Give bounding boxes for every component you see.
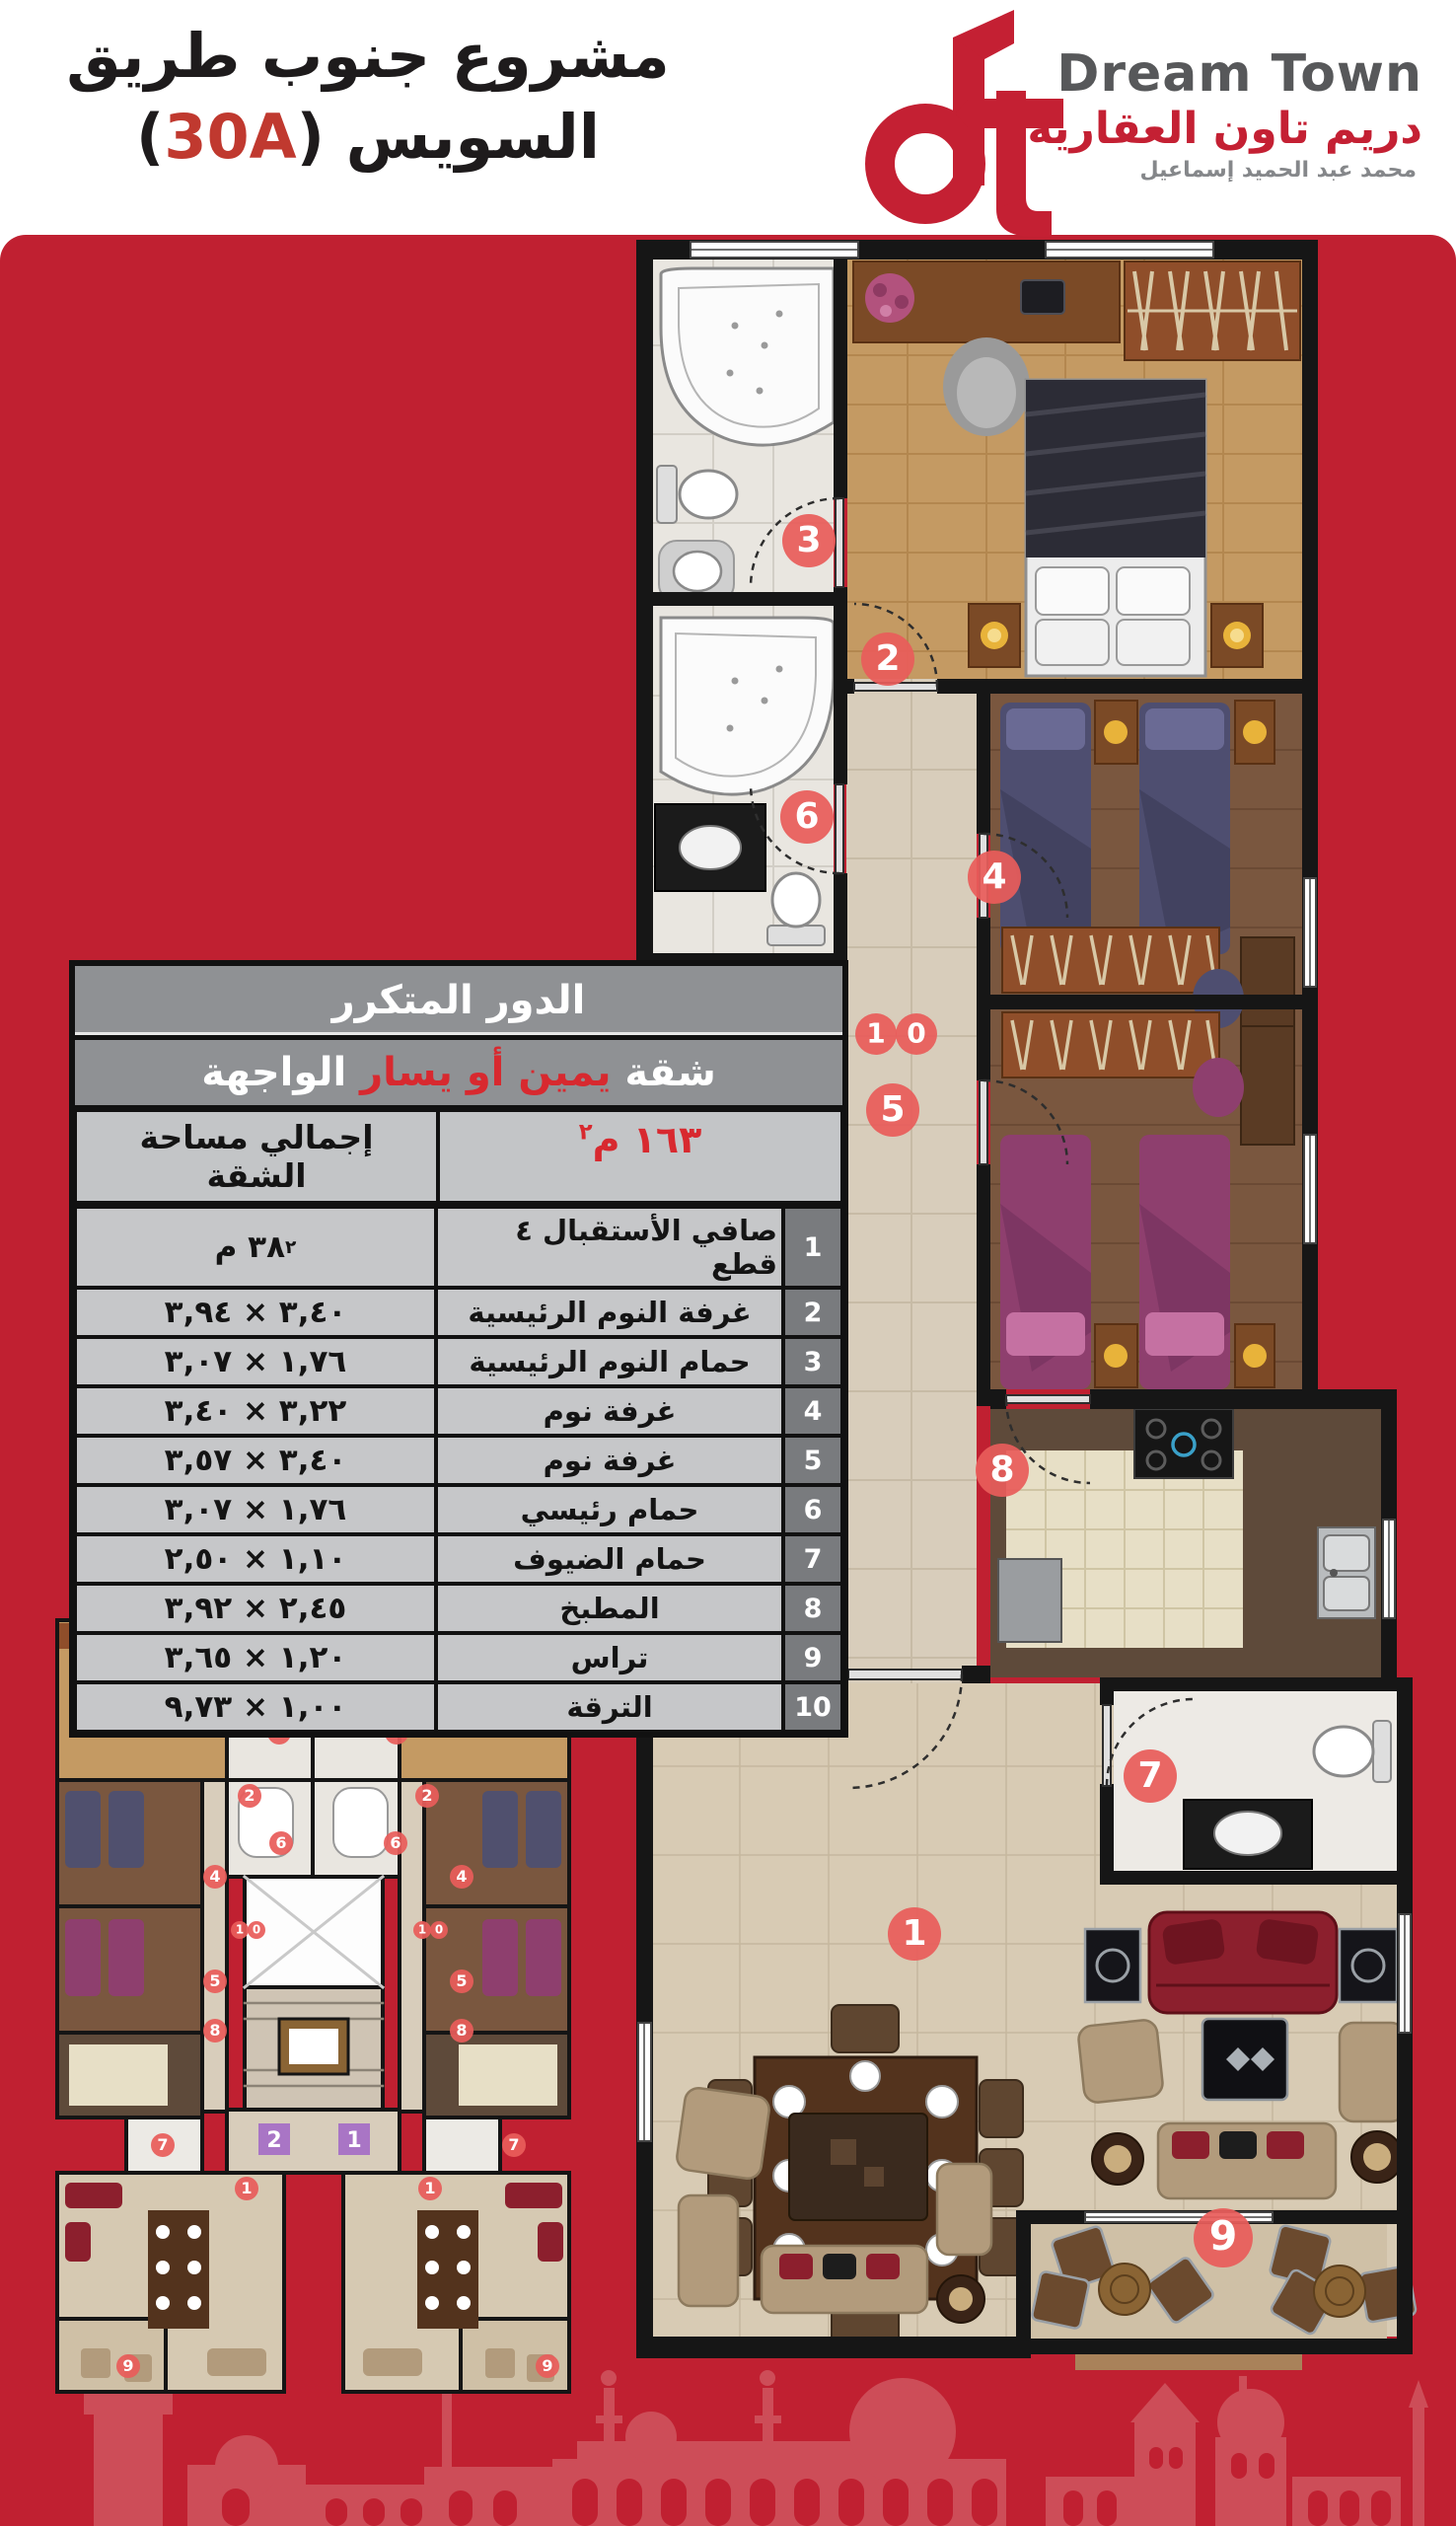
terrace-sill [1075,2354,1302,2370]
plan-marker-label: 6 [794,796,819,837]
plan-marker-label: 2 [875,638,900,679]
master-bed [1026,380,1205,676]
title-line2: السويس (30A) [28,97,708,178]
mini-marker-label: 1 [418,1923,426,1937]
room-label: غرفة النوم الرئيسية [438,1290,781,1335]
mini-marker-label: 1 [241,2179,252,2197]
logo-name-en: Dream Town [1016,47,1422,102]
logo-name-ar: دريم تاون العقارية [1016,102,1422,156]
room-dimensions: ٢,٤٥ × ٣,٩٢ [77,1586,434,1631]
mini-marker-label: 4 [209,1867,220,1886]
area-label: إجمالي مساحة الشقة [77,1112,436,1201]
room-number-badge: 7 [785,1536,840,1582]
spec-row-4: 4غرفة نوم٣,٢٢ × ٣,٤٠ [75,1386,842,1436]
plan-marker-label: 0 [907,1016,925,1049]
plan-marker-label: 8 [989,1449,1014,1490]
spec-table: الدور المتكرر شقة يمين أو يسار الواجهة ١… [69,960,848,1738]
spec-row-9: 9تراس١,٢٠ × ٣,٦٥ [75,1633,842,1682]
mini-marker-label: 9 [542,2356,552,2375]
plan-marker-label: 1 [866,1016,885,1049]
room-dimensions: ١,٧٦ × ٣,٠٧ [77,1339,434,1384]
room-dimensions: ١,١٠ × ٢,٥٠ [77,1536,434,1582]
mini-unit-label-right: 1 [346,2128,361,2153]
spec-rows: 1صافي الأستقبال ٤ قطع٣٨ م٢2غرفة النوم ال… [75,1207,842,1732]
spec-row-1: 1صافي الأستقبال ٤ قطع٣٨ م٢ [75,1207,842,1288]
mini-marker-label: 2 [244,1786,255,1805]
spec-row-5: 5غرفة نوم٣,٤٠ × ٣,٥٧ [75,1436,842,1485]
room-number-badge: 6 [785,1487,840,1532]
mini-marker-label: 4 [456,1867,467,1886]
room-dimensions: ١,٠٠ × ٩,٧٣ [77,1684,434,1730]
mini-unit-label-left: 2 [266,2128,281,2153]
room-label: المطبخ [438,1586,781,1631]
mini-marker-label: 8 [456,2021,467,2040]
room-number-badge: 2 [785,1290,840,1335]
mini-marker-label: 0 [435,1923,443,1937]
mini-marker-label: 7 [508,2135,519,2154]
spec-table-title: الدور المتكرر [75,966,842,1040]
mini-marker-label: 1 [236,1923,244,1937]
spec-row-7: 7حمام الضيوف١,١٠ × ٢,٥٠ [75,1534,842,1584]
room-label: حمام رئيسي [438,1487,781,1532]
title-line1: مشروع جنوب طريق [28,16,708,97]
spec-row-6: 6حمام رئيسي١,٧٦ × ٣,٠٧ [75,1485,842,1534]
spec-row-10: 10الترقة١,٠٠ × ٩,٧٣ [75,1682,842,1732]
logo: Dream Town دريم تاون العقارية محمد عبد ا… [1016,47,1422,186]
mini-marker-label: 6 [390,1833,400,1852]
page-title: مشروع جنوب طريق السويس (30A) [28,16,708,178]
plan-marker-label: 7 [1137,1755,1162,1796]
title-accent: 30A [164,101,296,173]
mini-marker-label: 7 [157,2135,168,2154]
room-dimensions: ١,٢٠ × ٣,٦٥ [77,1635,434,1680]
room-label: تراس [438,1635,781,1680]
mini-marker-label: 5 [209,1971,220,1990]
left-lounge-set [676,2086,927,2313]
master-wardrobe [1125,261,1300,360]
mini-marker-label: 6 [275,1833,286,1852]
master-desk [853,261,1120,342]
room-label: حمام الضيوف [438,1536,781,1582]
plan-marker-label: 4 [982,856,1006,897]
logo-owner: محمد عبد الحميد إسماعيل [1016,156,1422,186]
mini-marker-label: 1 [424,2179,435,2197]
room-label: حمام النوم الرئيسية [438,1339,781,1384]
spec-area-row: ١٦٣ م٢ إجمالي مساحة الشقة [75,1110,842,1207]
plan-marker-label: 9 [1209,2212,1238,2260]
room-dimensions: ٣,٤٠ × ٣,٩٤ [77,1290,434,1335]
poster: 32641058719 [0,0,1456,2526]
room-dimensions: ٣,٤٠ × ٣,٥٧ [77,1438,434,1483]
spec-row-8: 8المطبخ٢,٤٥ × ٣,٩٢ [75,1584,842,1633]
room-number-badge: 4 [785,1388,840,1434]
spec-row-2: 2غرفة النوم الرئيسية٣,٤٠ × ٣,٩٤ [75,1288,842,1337]
room-number-badge: 3 [785,1339,840,1384]
room-number-badge: 8 [785,1586,840,1631]
mini-marker-label: 9 [122,2356,133,2375]
room-dimensions: ٣٨ م٢ [77,1209,434,1286]
spec-row-3: 3حمام النوم الرئيسية١,٧٦ × ٣,٠٧ [75,1337,842,1386]
area-value: ١٦٣ م٢ [440,1112,840,1201]
master-chair [943,337,1030,436]
mini-marker-label: 8 [209,2021,220,2040]
room-label: صافي الأستقبال ٤ قطع [438,1209,781,1286]
mini-marker-label: 2 [421,1786,432,1805]
room-label: غرفة نوم [438,1438,781,1483]
room-number-badge: 9 [785,1635,840,1680]
room-label: الترقة [438,1684,781,1730]
room-label: غرفة نوم [438,1388,781,1434]
room-dimensions: ٣,٢٢ × ٣,٤٠ [77,1388,434,1434]
plan-marker-label: 3 [796,520,821,560]
room-dimensions: ١,٧٦ × ٣,٠٧ [77,1487,434,1532]
mini-marker-label: 0 [253,1923,260,1937]
plan-marker-label: 1 [902,1913,926,1954]
room-number-badge: 5 [785,1438,840,1483]
spec-table-subtitle: شقة يمين أو يسار الواجهة [75,1040,842,1110]
room-number-badge: 10 [785,1684,840,1730]
mini-marker-label: 5 [456,1971,467,1990]
plan-marker-label: 5 [880,1089,905,1130]
room-number-badge: 1 [785,1209,840,1286]
